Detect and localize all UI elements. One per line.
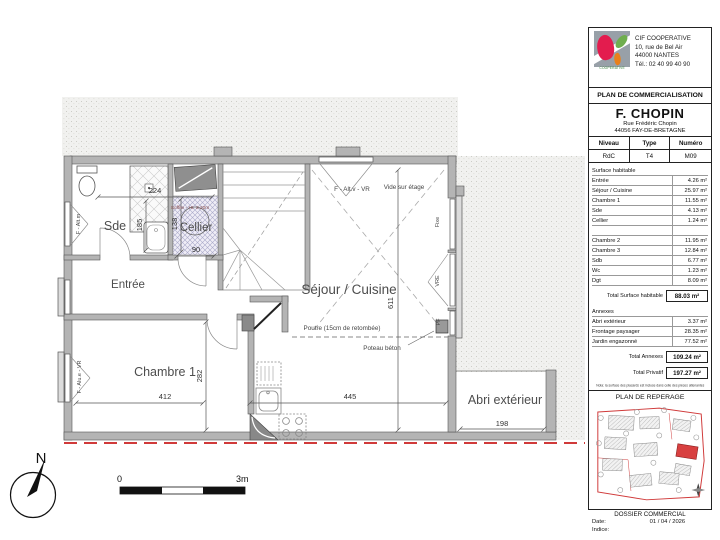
total-privatif-row: Total Privatif 197.27 m² bbox=[592, 367, 708, 379]
surfaces-title: Surface habitable bbox=[592, 168, 708, 174]
surface-row: Wc1.23 m² bbox=[592, 266, 708, 276]
site-map bbox=[589, 403, 711, 509]
vre-label: VRE bbox=[435, 275, 441, 287]
cif-logo: COOPÉRATIVE bbox=[592, 31, 632, 85]
surface-value: 4.13 m² bbox=[672, 206, 708, 215]
surface-row: Chambre 111.55 m² bbox=[592, 196, 708, 206]
surface-row: Sdb6.77 m² bbox=[592, 256, 708, 266]
wc-bowl bbox=[79, 176, 95, 196]
dossier-block: DOSSIER COMMERCIAL Date: 01 / 04 / 2026 … bbox=[589, 509, 711, 537]
note-text: Nota: la surface des placards est inclus… bbox=[596, 384, 704, 387]
surface-row: Cellier1.24 m² bbox=[592, 216, 708, 226]
annexe-row: Abri extérieur3.37 m² bbox=[592, 317, 708, 327]
surfaces-list: Entrée4.26 m² Séjour / Cuisine25.97 m² C… bbox=[592, 175, 708, 286]
unit-value-type: T4 bbox=[630, 150, 671, 162]
surface-row: Dgt8.09 m² bbox=[592, 276, 708, 286]
document-title: PLAN DE COMMERCIALISATION bbox=[589, 87, 711, 104]
date-label: Date: bbox=[592, 519, 627, 527]
total-habitable-label: Total Surface habitable bbox=[607, 293, 663, 299]
surface-value: 4.26 m² bbox=[672, 176, 708, 185]
surface-value: 1.23 m² bbox=[672, 266, 708, 275]
soffite-label: Soffite - Ht. 2.20m bbox=[171, 205, 210, 211]
surface-row: Entrée4.26 m² bbox=[592, 176, 708, 186]
annexes-section: Annexes Abri extérieur3.37 m² Frontage p… bbox=[589, 304, 711, 381]
dim-611: 611 bbox=[386, 297, 395, 309]
annexes-title: Annexes bbox=[592, 309, 708, 315]
surface-label: Chambre 1 bbox=[592, 198, 672, 204]
unit-header-type: Type bbox=[630, 137, 671, 150]
dim-412: 412 bbox=[159, 392, 172, 401]
total-annexes-value: 109.24 m² bbox=[666, 351, 708, 363]
title-block: COOPÉRATIVE CIF COOPERATIVE 10, rue de B… bbox=[588, 27, 712, 510]
surface-row: Sde4.13 m² bbox=[592, 206, 708, 216]
company-phone: Tél.: 02 40 99 40 90 bbox=[635, 61, 691, 70]
annexe-label: Frontage paysager bbox=[592, 329, 672, 335]
total-privatif-value: 197.27 m² bbox=[666, 367, 708, 379]
floor-plan-drawing: Sde Cellier Entrée Séjour / Cuisine Cham… bbox=[0, 0, 588, 540]
surface-value: 11.55 m² bbox=[672, 196, 708, 205]
company-header: COOPÉRATIVE CIF COOPERATIVE 10, rue de B… bbox=[589, 28, 711, 87]
surface-label: Sde bbox=[592, 208, 672, 214]
annexe-label: Jardin engazonné bbox=[592, 339, 672, 345]
cif-logo-icon bbox=[594, 31, 630, 67]
total-annexes-label: Total Annexes bbox=[629, 354, 663, 360]
fixe-label: Fixe bbox=[435, 217, 441, 227]
dim-185: 185 bbox=[135, 219, 144, 232]
indice-label: Indice: bbox=[592, 527, 627, 535]
total-annexes-row: Total Annexes 109.24 m² bbox=[592, 351, 708, 363]
room-label-abri: Abri extérieur bbox=[468, 393, 542, 407]
surface-value: 11.95 m² bbox=[672, 236, 708, 245]
surface-label: Chambre 2 bbox=[592, 238, 672, 244]
room-label-sejour: Séjour / Cuisine bbox=[301, 282, 396, 297]
surface-value: 12.84 m² bbox=[672, 246, 708, 255]
total-privatif-label: Total Privatif bbox=[633, 370, 663, 376]
annexe-value: 77.52 m² bbox=[672, 337, 708, 346]
window-top-label: F - Alt.v - VR bbox=[334, 186, 370, 193]
surface-label: Chambre 3 bbox=[592, 248, 672, 254]
total-habitable-row: Total Surface habitable 88.03 m² bbox=[592, 290, 708, 302]
surface-value: 25.97 m² bbox=[672, 186, 708, 195]
annexe-value: 3.37 m² bbox=[672, 317, 708, 326]
room-label-chambre1: Chambre 1 bbox=[134, 365, 196, 379]
dim-90: 90 bbox=[192, 245, 200, 254]
indice-value bbox=[627, 527, 708, 535]
surface-label: Entrée bbox=[592, 178, 672, 184]
dim-282: 282 bbox=[195, 370, 204, 383]
poteau-label: Poteau béton bbox=[363, 345, 401, 352]
dossier-indice-row: Indice: bbox=[592, 527, 708, 535]
annexe-label: Abri extérieur bbox=[592, 319, 672, 325]
surface-label: Cellier bbox=[592, 218, 672, 224]
dim-198: 198 bbox=[496, 419, 509, 428]
date-value: 01 / 04 / 2026 bbox=[627, 519, 708, 527]
company-address2: 44000 NANTES bbox=[635, 52, 691, 61]
poutre-label: Poutre (15cm de retombée) bbox=[304, 325, 381, 332]
annexe-value: 28.35 m² bbox=[672, 327, 708, 336]
unit-value-niveau: RdC bbox=[589, 150, 630, 162]
reperage-map bbox=[591, 403, 709, 503]
window-chambre-label: F - Alu.e - VR bbox=[77, 360, 83, 393]
project-block: F. CHOPIN Rue Frédéric Chopin 44056 FAY-… bbox=[589, 104, 711, 136]
company-name: CIF COOPERATIVE bbox=[635, 35, 691, 44]
surface-row: Chambre 211.95 m² bbox=[592, 236, 708, 246]
note-row: Nota: la surface des placards est inclus… bbox=[589, 381, 711, 390]
surfaces-section: Surface habitable Entrée4.26 m² Séjour /… bbox=[589, 163, 711, 304]
dim-138: 138 bbox=[170, 218, 179, 231]
surface-row: Séjour / Cuisine25.97 m² bbox=[592, 186, 708, 196]
dim-445: 445 bbox=[344, 392, 357, 401]
unit-header-niveau: Niveau bbox=[589, 137, 630, 150]
surface-label: Dgt bbox=[592, 278, 672, 284]
annexe-row: Frontage paysager28.35 m² bbox=[592, 327, 708, 337]
scale-end: 3m bbox=[236, 474, 249, 484]
surface-row: Chambre 312.84 m² bbox=[592, 246, 708, 256]
dossier-title: DOSSIER COMMERCIAL bbox=[592, 511, 708, 518]
unit-header-numero: Numéro bbox=[670, 137, 711, 150]
surface-label: Wc bbox=[592, 268, 672, 274]
logo-caption: COOPÉRATIVE bbox=[599, 67, 624, 70]
unit-table: Niveau Type Numéro RdC T4 M09 bbox=[589, 136, 711, 163]
project-name: F. CHOPIN bbox=[589, 106, 711, 121]
window-sde-label: F - Alt.m bbox=[76, 213, 82, 234]
surface-value: 6.77 m² bbox=[672, 256, 708, 265]
surface-value: 1.24 m² bbox=[672, 216, 708, 225]
room-label-sde: Sde bbox=[104, 219, 126, 233]
north-n-label: N bbox=[36, 450, 47, 467]
project-address2: 44056 FAY-DE-BRETAGNE bbox=[589, 128, 711, 135]
annexes-list: Abri extérieur3.37 m² Frontage paysager2… bbox=[592, 316, 708, 347]
wc-tank bbox=[77, 166, 97, 173]
plan-sheet: Sde Cellier Entrée Séjour / Cuisine Cham… bbox=[0, 0, 720, 540]
dim-224: 224 bbox=[149, 186, 162, 195]
scale-start: 0 bbox=[117, 474, 122, 484]
surface-label: Séjour / Cuisine bbox=[592, 188, 672, 194]
total-habitable-value: 88.03 m² bbox=[666, 290, 708, 302]
company-address1: 10, rue de Bel Air bbox=[635, 44, 691, 53]
vide-sur-etage-label: Vide sur étage bbox=[384, 184, 425, 191]
surface-label: Sdb bbox=[592, 258, 672, 264]
surface-value: 8.09 m² bbox=[672, 276, 708, 285]
project-address1: Rue Frédéric Chopin bbox=[589, 121, 711, 128]
reperage-title: PLAN DE REPERAGE bbox=[589, 390, 711, 403]
unit-value-numero: M09 bbox=[670, 150, 711, 162]
dossier-date-row: Date: 01 / 04 / 2026 bbox=[592, 519, 708, 527]
room-label-cellier: Cellier bbox=[180, 222, 213, 234]
room-label-entree: Entrée bbox=[111, 279, 145, 291]
pf-label: PF bbox=[436, 318, 442, 326]
annexe-row: Jardin engazonné77.52 m² bbox=[592, 337, 708, 347]
company-info: CIF COOPERATIVE 10, rue de Bel Air 44000… bbox=[635, 31, 691, 85]
surface-row-blank bbox=[592, 226, 708, 236]
